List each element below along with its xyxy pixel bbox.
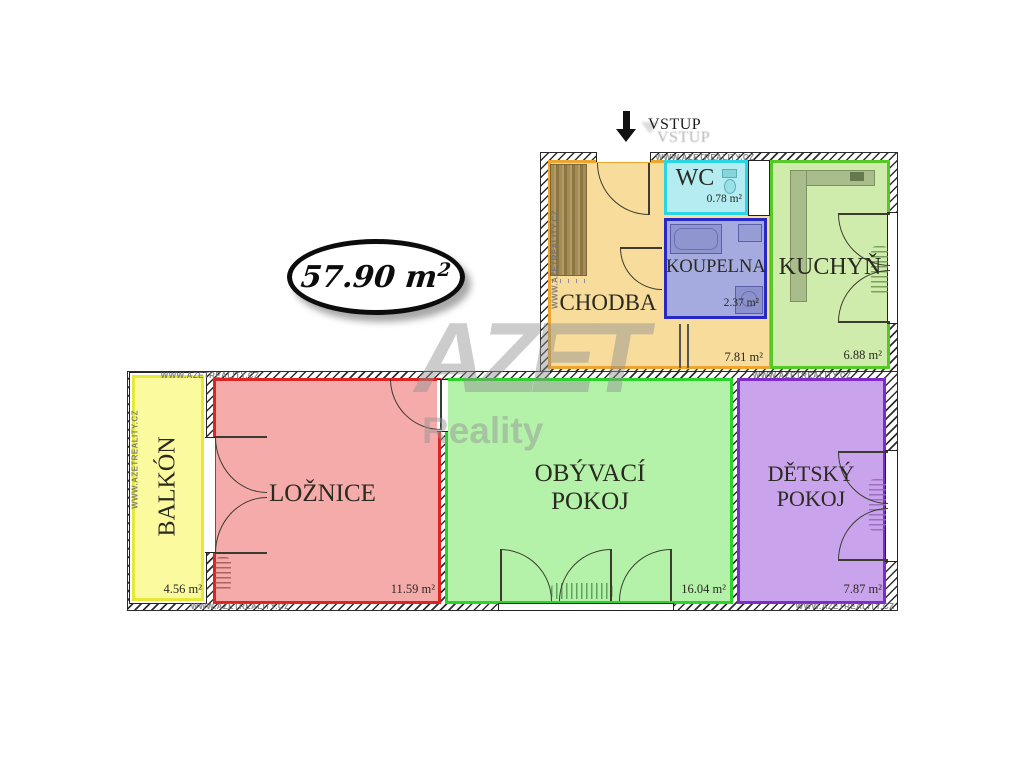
bathroom-door-leaf — [620, 247, 662, 249]
watermark-url-midwall-left: WWW.AZETREALITY.CZ — [150, 371, 270, 380]
entrance-door-opening — [596, 152, 651, 162]
entrance-label: VSTUP — [648, 116, 701, 134]
balcony-door-opening — [205, 437, 215, 553]
area-loznice: 11.59 m² — [330, 582, 435, 597]
area-chodba: 7.81 m² — [660, 350, 763, 365]
watermark-url-balcony-wall: WWW.AZETREALITY.CZ — [131, 405, 140, 515]
area-kuchyn: 6.88 m² — [778, 348, 882, 363]
label-balkon: BALKÓN — [155, 426, 182, 546]
watermark-url-bottom-wall-left: WWW.AZETREALITY.CZ — [180, 602, 300, 611]
label-detsky: DĚTSKÝ POKOJ — [746, 462, 876, 511]
kitchen-window-leaf-lower — [838, 321, 890, 323]
watermark-url-bottom-wall-right: WWW.AZETREALITY.CZ — [795, 602, 895, 611]
bathtub-inner — [674, 228, 718, 250]
entrance-arrow-icon — [623, 111, 630, 130]
balcony-door-leaf-upper — [215, 436, 267, 438]
detsky-window-leaf-lower — [838, 559, 888, 561]
watermark-subtitle: Reality — [422, 410, 543, 452]
area-obyvaci: 16.04 m² — [618, 582, 726, 597]
kitchen-hob — [850, 172, 864, 181]
area-koupelna: 2.37 m² — [668, 297, 759, 309]
label-loznice: LOŽNICE — [255, 480, 390, 508]
watermark-url-midwall-right: WWW.AZETREALITY.CZ — [742, 371, 862, 380]
sink — [738, 224, 762, 242]
shaft-niche — [748, 160, 770, 216]
livingroom-window-leaf-2 — [610, 549, 612, 601]
kitchen-window-leaf-upper — [838, 213, 890, 215]
label-koupelna: KOUPELNA — [666, 257, 765, 278]
watermark-brand: AZET — [407, 308, 650, 408]
label-obyvaci: OBÝVACÍ POKOJ — [506, 460, 674, 516]
label-chodba: CHODBA — [538, 290, 678, 316]
entrance-door-leaf — [648, 163, 650, 215]
entrance-arrow-head — [616, 129, 636, 142]
area-balkon: 4.56 m² — [138, 582, 202, 597]
kitchen-counter-left — [790, 170, 807, 302]
area-wc: 0.78 m² — [668, 193, 742, 205]
label-wc: WC — [664, 165, 726, 192]
floor-plan: VSTUP VSTUP 57.90 m2 AZET Reality WWW.AZ… — [0, 0, 1024, 768]
detsky-window-leaf-upper — [838, 451, 888, 453]
livingroom-window-opening — [498, 603, 674, 611]
label-kuchyn: KUCHYŇ — [772, 254, 888, 281]
area-detsky: 7.87 m² — [800, 582, 882, 597]
total-area-badge: 57.90 m2 — [287, 239, 465, 315]
radiator-loznice — [215, 557, 231, 591]
balcony-door-leaf-lower — [215, 552, 267, 554]
livingroom-window-leaf-1 — [500, 549, 502, 601]
watermark-url-top-wall: WWW.AZETREALITY.CZ — [655, 153, 755, 162]
total-area-text: 57.90 m2 — [300, 260, 453, 295]
